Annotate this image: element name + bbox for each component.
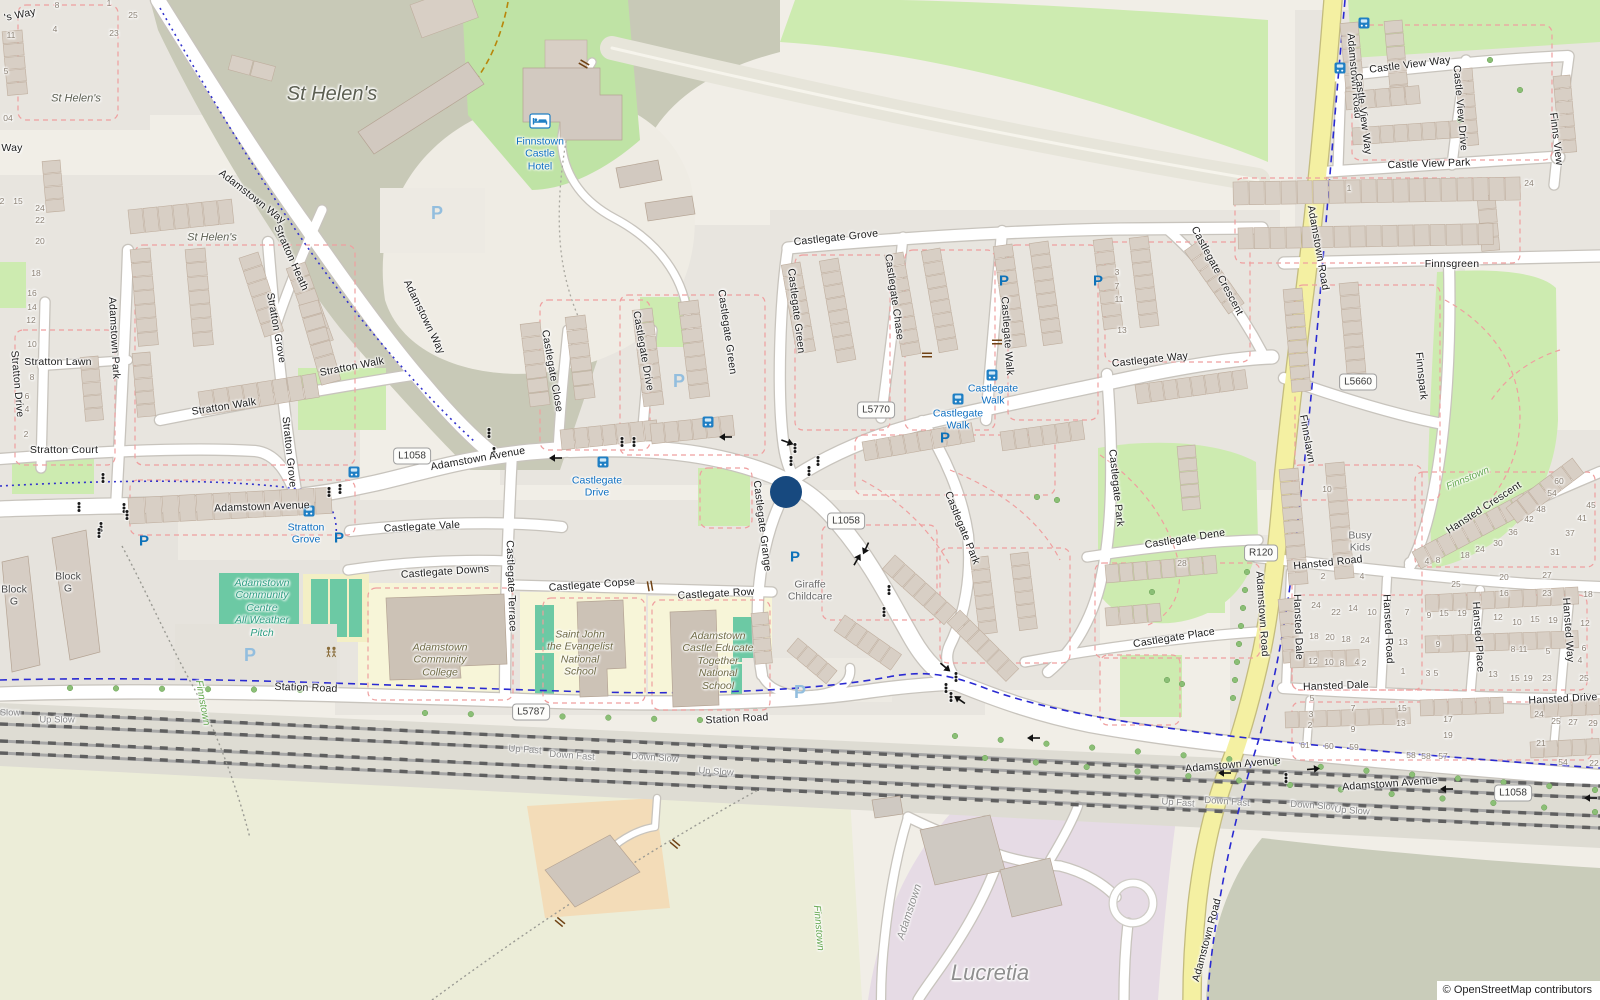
house-number: 5 (1310, 693, 1315, 703)
house-number: 3 (1309, 709, 1314, 719)
house-number: 7 (1405, 607, 1410, 617)
house-number: 9 (1351, 724, 1356, 734)
house-number: 23 (109, 28, 118, 38)
poi-label: Giraffe Childcare (788, 579, 832, 604)
house-number: 17 (1443, 714, 1452, 724)
house-number: 19 (1443, 730, 1452, 740)
house-number: 4 (1355, 657, 1360, 667)
house-number: 24 (1524, 178, 1533, 188)
road-ref-badge: L1058 (1494, 785, 1532, 802)
house-number: 41 (1577, 513, 1586, 523)
street-label: Finnslawn (1297, 414, 1318, 464)
house-number: 16 (27, 288, 36, 298)
railway-track-label: Up Slow (698, 765, 734, 779)
house-number: 23 (1542, 588, 1551, 598)
school-label: Saint John the Evangelist National Schoo… (547, 628, 613, 678)
street-label: Stratton Walk (191, 396, 257, 418)
house-number: 10 (1322, 484, 1331, 494)
map-attribution[interactable]: © OpenStreetMap contributors (1437, 981, 1600, 1000)
poi-label: Finnstown Castle Hotel (516, 135, 564, 172)
street-label: Way (1, 142, 22, 154)
house-number: 58 (1406, 750, 1415, 760)
house-number: 15 (1439, 608, 1448, 618)
house-number: 4 (53, 24, 58, 34)
house-number: 22 (1331, 607, 1340, 617)
house-number: 60 (1324, 741, 1333, 751)
street-label: Castlegate Terrace (503, 540, 519, 632)
railway-track-label: Slow (0, 707, 20, 718)
street-label: Stratton Grove (279, 416, 299, 488)
house-number: 2 (24, 429, 29, 439)
railway-track-label: Down Fast (1204, 795, 1250, 809)
house-number: 9 (1427, 610, 1432, 620)
house-number: 8 (1511, 644, 1516, 654)
street-label: Castlegate Chase (882, 253, 906, 341)
house-number: 1 (1347, 183, 1352, 193)
house-number: 19 (1457, 608, 1466, 618)
house-number: 19 (1548, 615, 1557, 625)
railway-track-label: Up Fast (1161, 796, 1195, 809)
nature-label: Finnstown (192, 680, 212, 727)
street-label: Castlegate Way (1111, 350, 1188, 370)
house-number: 25 (128, 10, 137, 20)
house-number: 2 (1362, 658, 1367, 668)
road-ref-badge: L5660 (1339, 374, 1377, 391)
house-number: 21 (1536, 738, 1545, 748)
street-label: Finnsgreen (1425, 258, 1480, 270)
school-label: Adamstown Castle Educate Together Nation… (682, 630, 753, 692)
street-label: Castlegate Park (942, 490, 983, 567)
house-number: 20 (35, 236, 44, 246)
railway-track-label: Up Slow (1334, 804, 1370, 818)
bus-stop-label: Castlegate Walk (968, 383, 1018, 408)
street-label: Castle View Way (1369, 54, 1452, 76)
house-number: 25 (1551, 716, 1560, 726)
nature-label: Finnstown (1445, 465, 1492, 494)
block-label: Block G (55, 571, 81, 596)
street-label: Castle View Park (1387, 156, 1470, 171)
house-number: 3 (1115, 267, 1120, 277)
house-number: 58 (1421, 751, 1430, 761)
street-label: Stratton Court (30, 444, 98, 456)
house-number: 27 (1542, 570, 1551, 580)
house-number: 12 (1308, 656, 1317, 666)
house-number: 25 (1579, 673, 1588, 683)
house-number: 11 (7, 30, 16, 40)
street-label: Castlegate Close (539, 329, 566, 413)
house-number: 6 (25, 391, 30, 401)
street-label: Finnspark (1412, 352, 1429, 401)
house-number: 28 (1177, 558, 1186, 568)
house-number: 13 (1488, 669, 1497, 679)
bus-stop-label: Stratton Grove (288, 522, 325, 547)
house-number: 37 (1565, 528, 1574, 538)
school-label: Adamstown Community College (413, 641, 468, 678)
street-label: Station Road (705, 711, 769, 727)
map-labels-layer: 's WayWayAdamstown WayAdamstown WayStrat… (0, 0, 1600, 1000)
house-number: 25 (1451, 579, 1460, 589)
street-label: Hansted Place (1469, 601, 1486, 673)
house-number: 2 (1321, 571, 1326, 581)
leisure-pitch-label: Adamstown Community Centre All Weather P… (235, 577, 290, 639)
street-label: Adamstown Road (1304, 205, 1331, 292)
street-label: Stratton Heath (271, 223, 311, 292)
house-number: 12 (26, 315, 35, 325)
street-label: Castlegate Crescent (1188, 224, 1245, 317)
poi-label: Busy Kids (1348, 530, 1371, 555)
railway-track-label: Down Slow (631, 751, 679, 765)
house-number: 24 (1475, 544, 1484, 554)
railway-track-label: Down Fast (549, 749, 595, 763)
street-label: Castle View Drive (1450, 65, 1470, 152)
house-number: 24 (35, 203, 44, 213)
house-number: 61 (1300, 740, 1309, 750)
road-ref-badge: L5770 (857, 402, 895, 419)
area-label: St Helen's (51, 93, 101, 106)
house-number: 14 (27, 302, 36, 312)
house-number: 13 (1396, 718, 1405, 728)
area-label: St Helen's (187, 232, 237, 245)
street-label: Adamstown Way (216, 167, 287, 227)
street-label: Castlegate Park (1106, 449, 1126, 528)
street-label: Castlegate Drive (630, 310, 656, 392)
road-ref-badge: L5787 (512, 704, 550, 721)
street-label: Castlegate Grove (793, 227, 879, 248)
street-label: Finns View (1547, 112, 1566, 166)
street-label: Stratton Grove (264, 292, 289, 364)
house-number: 27 (1568, 717, 1577, 727)
house-number: 18 (31, 268, 40, 278)
house-number: 1 (1401, 666, 1406, 676)
area-label: St Helen's (287, 83, 378, 107)
house-number: 54 (1547, 488, 1556, 498)
street-label: Castlegate Grange (750, 480, 773, 572)
house-number: 15 (1397, 703, 1406, 713)
house-number: 4 (1425, 556, 1430, 566)
house-number: 2 (1308, 720, 1313, 730)
house-number: 42 (1524, 514, 1533, 524)
street-label: Castlegate Green (785, 268, 808, 354)
house-number: 8 (55, 0, 60, 10)
street-label: Adamstown Avenue (214, 499, 310, 515)
road-ref-badge: L1058 (393, 448, 431, 465)
street-label: Adamstown Avenue (1185, 755, 1282, 776)
street-label: Hansted Way (1560, 597, 1577, 663)
street-label: Adamstown Way (401, 278, 448, 356)
house-number: 11 (1115, 294, 1124, 304)
house-number: 54 (1558, 757, 1567, 767)
house-number: 20 (1499, 572, 1508, 582)
house-number: 3 (1426, 668, 1431, 678)
street-label: Stratton Walk (319, 355, 385, 380)
house-number: 16 (1499, 588, 1508, 598)
street-label: Castlegate Green (715, 289, 739, 375)
house-number: 8 (30, 372, 35, 382)
bus-stop-label: Castlegate Drive (572, 475, 622, 500)
house-number: 10 (27, 339, 36, 349)
house-number: 4 (25, 404, 30, 414)
house-number: 11 (1519, 644, 1528, 654)
street-label: Hansted Dale (1303, 679, 1369, 694)
house-number: 24 (1360, 635, 1369, 645)
house-number: 10 (1324, 657, 1333, 667)
house-number: 5 (4, 66, 9, 76)
house-number: 15 (1510, 673, 1519, 683)
house-number: 5 (1546, 646, 1551, 656)
house-number: 20 (1325, 632, 1334, 642)
street-label: Adamstown Avenue (1342, 774, 1438, 793)
street-label: Adamstown Road (1190, 897, 1224, 983)
house-number: 12 (1493, 612, 1502, 622)
street-label: Hansted Drive (1528, 691, 1598, 707)
house-number: 22 (1589, 758, 1598, 768)
house-number: 45 (1586, 500, 1595, 510)
construction-area-label: Adamstown (895, 883, 925, 942)
house-number: 36 (1508, 527, 1517, 537)
nature-label: Finnstown (810, 905, 826, 951)
bus-stop-label: Castlegate Walk (933, 408, 983, 433)
house-number: 15 (13, 196, 22, 206)
railway-track-label: Up Slow (39, 714, 74, 725)
street-label: 's Way (3, 6, 37, 25)
house-number: 6 (1582, 643, 1587, 653)
street-label: Adamstown Avenue (430, 445, 527, 474)
road-ref-badge: L1058 (827, 513, 865, 530)
house-number: 15 (1530, 614, 1539, 624)
street-label: Adamstown Park (106, 297, 123, 380)
house-number: 7 (1115, 281, 1120, 291)
house-number: 23 (1542, 673, 1551, 683)
house-number: 30 (1493, 538, 1502, 548)
house-number: 31 (1550, 547, 1559, 557)
house-number: 10 (1367, 607, 1376, 617)
house-number: 9 (1436, 639, 1441, 649)
house-number: 13 (1398, 637, 1407, 647)
house-number: 18 (1460, 550, 1469, 560)
house-number: 04 (3, 113, 12, 123)
street-label: Castlegate Row (677, 586, 754, 602)
house-number: 8 (1340, 658, 1345, 668)
street-label: Castlegate Copse (548, 576, 635, 594)
house-number: 7 (1351, 703, 1356, 713)
house-number: 14 (1348, 603, 1357, 613)
house-number: 8 (1436, 555, 1441, 565)
house-number: 57 (1438, 751, 1447, 761)
house-number: 4 (1578, 655, 1583, 665)
street-label: Station Road (274, 681, 338, 696)
street-label: Hansted Dale (1291, 594, 1306, 660)
street-label: Castlegate Downs (400, 563, 489, 582)
street-label: Stratton Lawn (24, 356, 91, 368)
road-ref-badge: R120 (1244, 545, 1278, 562)
house-number: 24 (1311, 600, 1320, 610)
house-number: 29 (1588, 718, 1597, 728)
house-number: 22 (35, 215, 44, 225)
street-label: Castlegate Dene (1144, 527, 1226, 552)
house-number: 1 (107, 0, 112, 8)
railway-track-label: Up Fast (508, 743, 542, 756)
street-label: Hansted Road (1380, 594, 1396, 664)
house-number: 12 (1580, 618, 1589, 628)
house-number: 24 (1534, 709, 1543, 719)
house-number: 13 (1117, 325, 1126, 335)
block-label: Block G (1, 584, 27, 609)
house-number: 60 (1554, 476, 1563, 486)
map-canvas[interactable]: PPPPPPPPPP 's WayWayAdamstown WayAdamsto… (0, 0, 1600, 1000)
house-number: 18 (1341, 634, 1350, 644)
street-label: Adamstown Road (1253, 571, 1271, 657)
house-number: 59 (1349, 742, 1358, 752)
street-label: Castlegate Place (1132, 625, 1216, 650)
house-number: 10 (1512, 617, 1521, 627)
house-number: 18 (1309, 631, 1318, 641)
street-label: Castlegate Walk (998, 296, 1016, 376)
construction-area-label: Lucretia (951, 960, 1029, 986)
house-number: 18 (1583, 589, 1592, 599)
house-number: 5 (1434, 668, 1439, 678)
house-number: 19 (1523, 673, 1532, 683)
house-number: 48 (1536, 504, 1545, 514)
house-number: 4 (1360, 571, 1365, 581)
street-label: Castlegate Vale (384, 519, 461, 535)
railway-track-label: Down Slow (1290, 799, 1338, 813)
street-label: Hansted Road (1293, 553, 1363, 573)
house-number: 2 (0, 196, 4, 206)
